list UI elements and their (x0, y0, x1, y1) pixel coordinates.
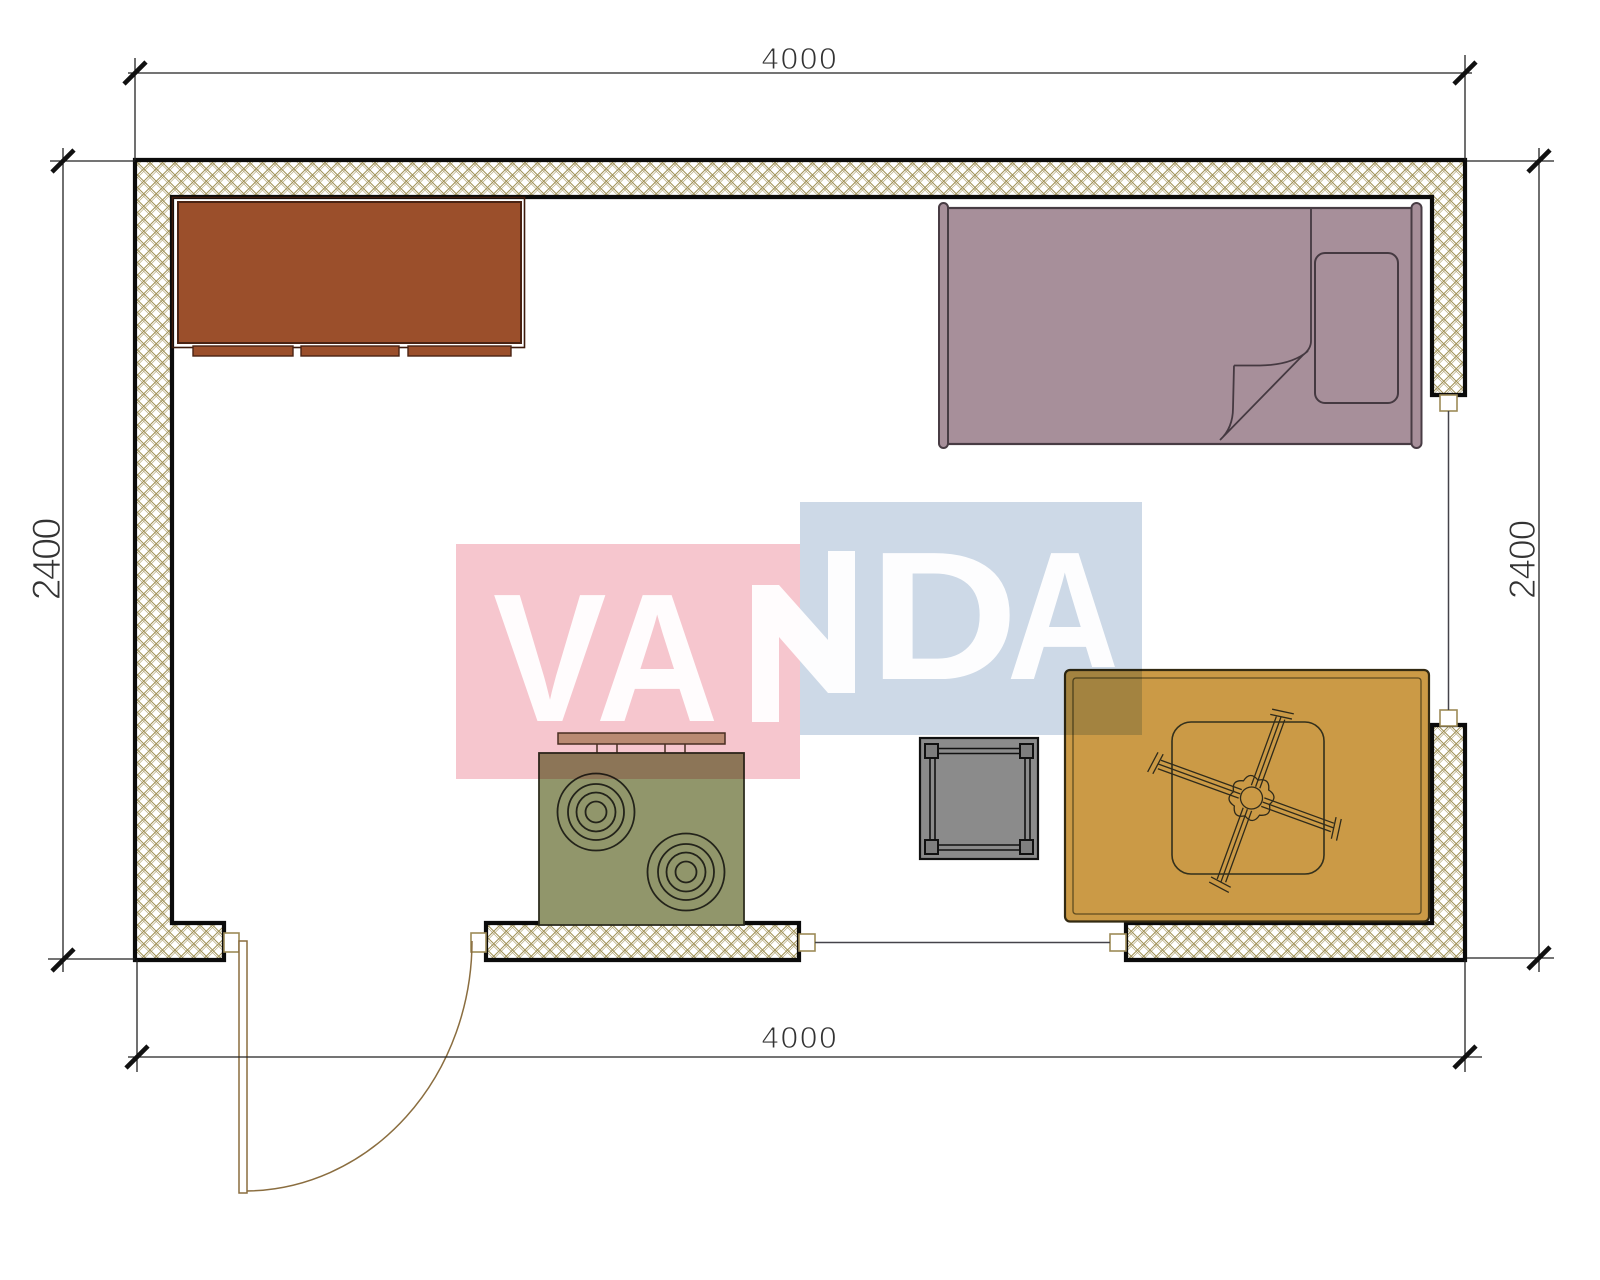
svg-text:4000: 4000 (762, 41, 839, 76)
svg-text:D: D (869, 514, 1018, 718)
svg-text:2400: 2400 (1502, 520, 1543, 599)
svg-text:VA: VA (493, 556, 721, 760)
svg-text:4000: 4000 (762, 1020, 839, 1055)
svg-text:2400: 2400 (25, 519, 69, 601)
